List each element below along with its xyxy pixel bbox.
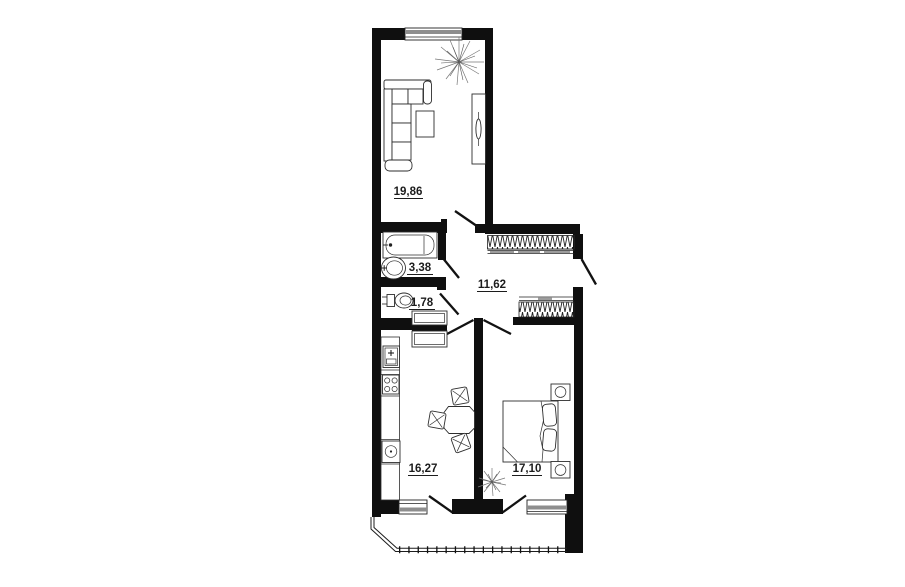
wall-bath-right [438,222,446,260]
wardrobe-top [488,236,575,254]
area-label-wc: 1,78 [411,297,434,309]
floor-plan-drawing: 19,86 3,38 1,78 [0,0,905,587]
wall-bottom-right-block [565,494,583,553]
wall-bedroom-top [513,317,575,325]
wall-bottom-left-block [372,500,399,514]
kitchen: 16,27 [381,337,475,500]
plant-living [435,37,484,85]
entrance-door-swing [582,259,597,285]
chair [451,387,470,406]
bedroom-balcony-door-swing [503,496,527,513]
bedroom: 17,10 [478,384,570,496]
wardrobe-lower [519,297,574,317]
wall-kitchen-bedroom-divider [474,318,483,500]
wall-bottom-central-block [452,499,503,514]
chair [428,411,447,430]
pillow [542,404,557,427]
bathroom: 3,38 [382,232,438,279]
kitchen-door-swing [447,320,474,334]
bed [503,401,558,462]
kitchen-sink [383,346,400,368]
wall-living-bottom [372,222,447,233]
toilet [382,293,413,308]
wall-top-left [372,28,405,40]
wall-left [372,28,381,517]
stove [383,375,400,394]
living-room-door-swing [455,211,479,228]
area-label-living-room: 19,86 [394,186,423,198]
kitchen-balcony-door-swing [429,496,453,513]
dining-table [444,407,475,434]
wardrobe-hatch [519,302,574,317]
wall-bedroom-right [574,325,583,494]
coffee-table [416,111,434,137]
wall-living-right [485,30,493,228]
balcony-edge-inner [374,517,567,548]
bathroom-door-swing [444,260,459,279]
area-label-bedroom: 17,10 [513,463,542,475]
washing-machine [382,441,400,463]
wall-cabinet-band [412,325,447,331]
bathtub [383,232,437,258]
area-label-bathroom: 3,38 [409,262,432,274]
living-room: 19,86 [384,37,486,199]
nightstand [551,462,570,479]
wall-hall-top [485,224,580,234]
balcony-edge-outer [371,517,567,552]
floor-plan: 19,86 3,38 1,78 [0,0,905,587]
living-room-window [405,28,462,40]
bedroom-door-swing [484,320,512,334]
area-label-hallway: 11,62 [478,279,506,291]
wash-basin [382,257,406,279]
wall-wc-bottom [372,318,412,330]
nightstand [551,384,570,401]
wall-bath-wc-divider [372,277,446,287]
pillow [542,428,557,451]
area-label-kitchen: 16,27 [409,463,438,475]
chair [451,433,472,454]
kitchen-window [399,500,427,514]
bedroom-window [527,500,567,514]
balcony [371,517,567,552]
tv-stand [472,94,486,164]
wardrobe-hatch [488,236,575,250]
wc: 1,78 [382,293,435,310]
